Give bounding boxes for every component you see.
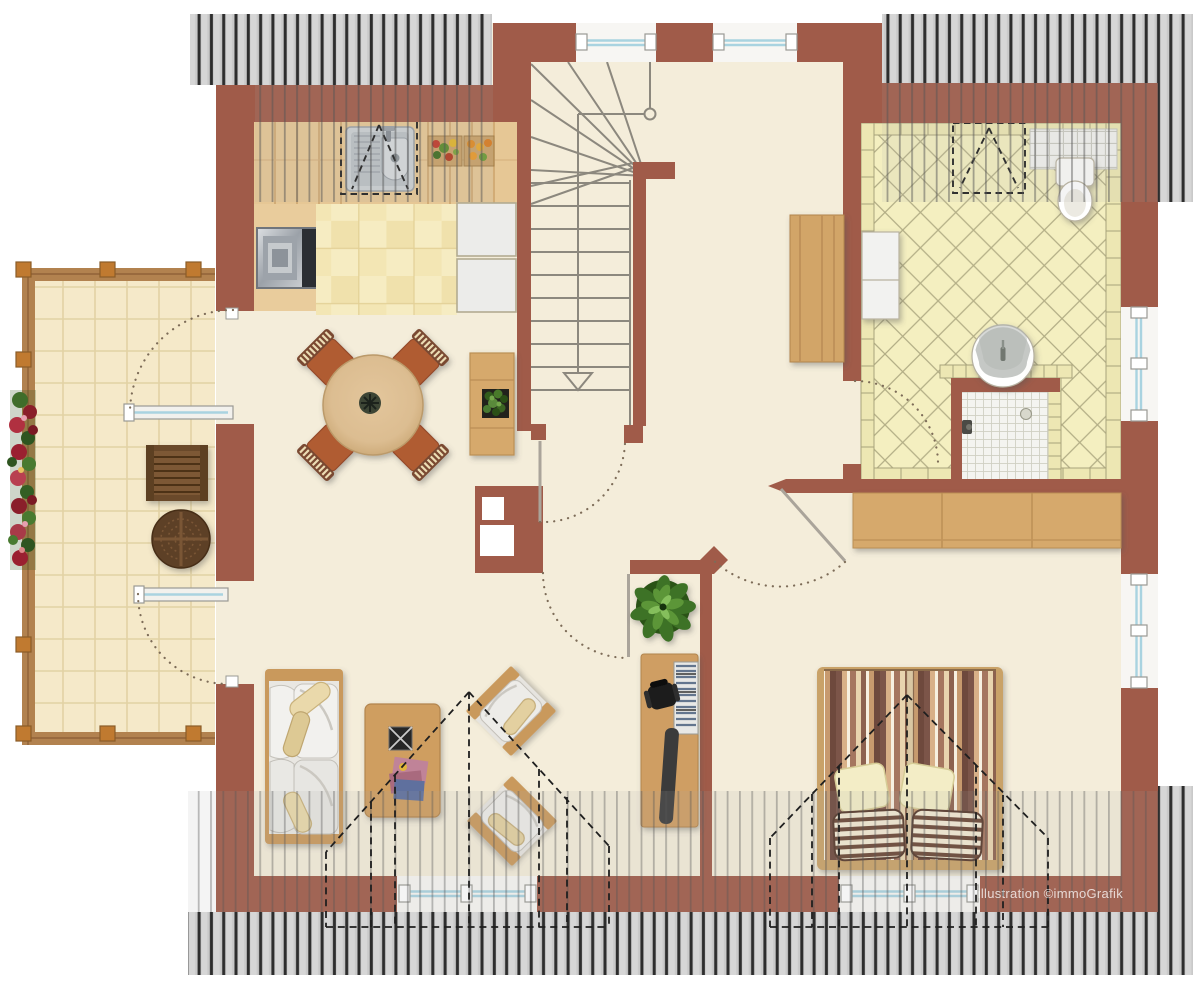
svg-text:illustration ©immoGrafik: illustration ©immoGrafik (978, 886, 1124, 901)
